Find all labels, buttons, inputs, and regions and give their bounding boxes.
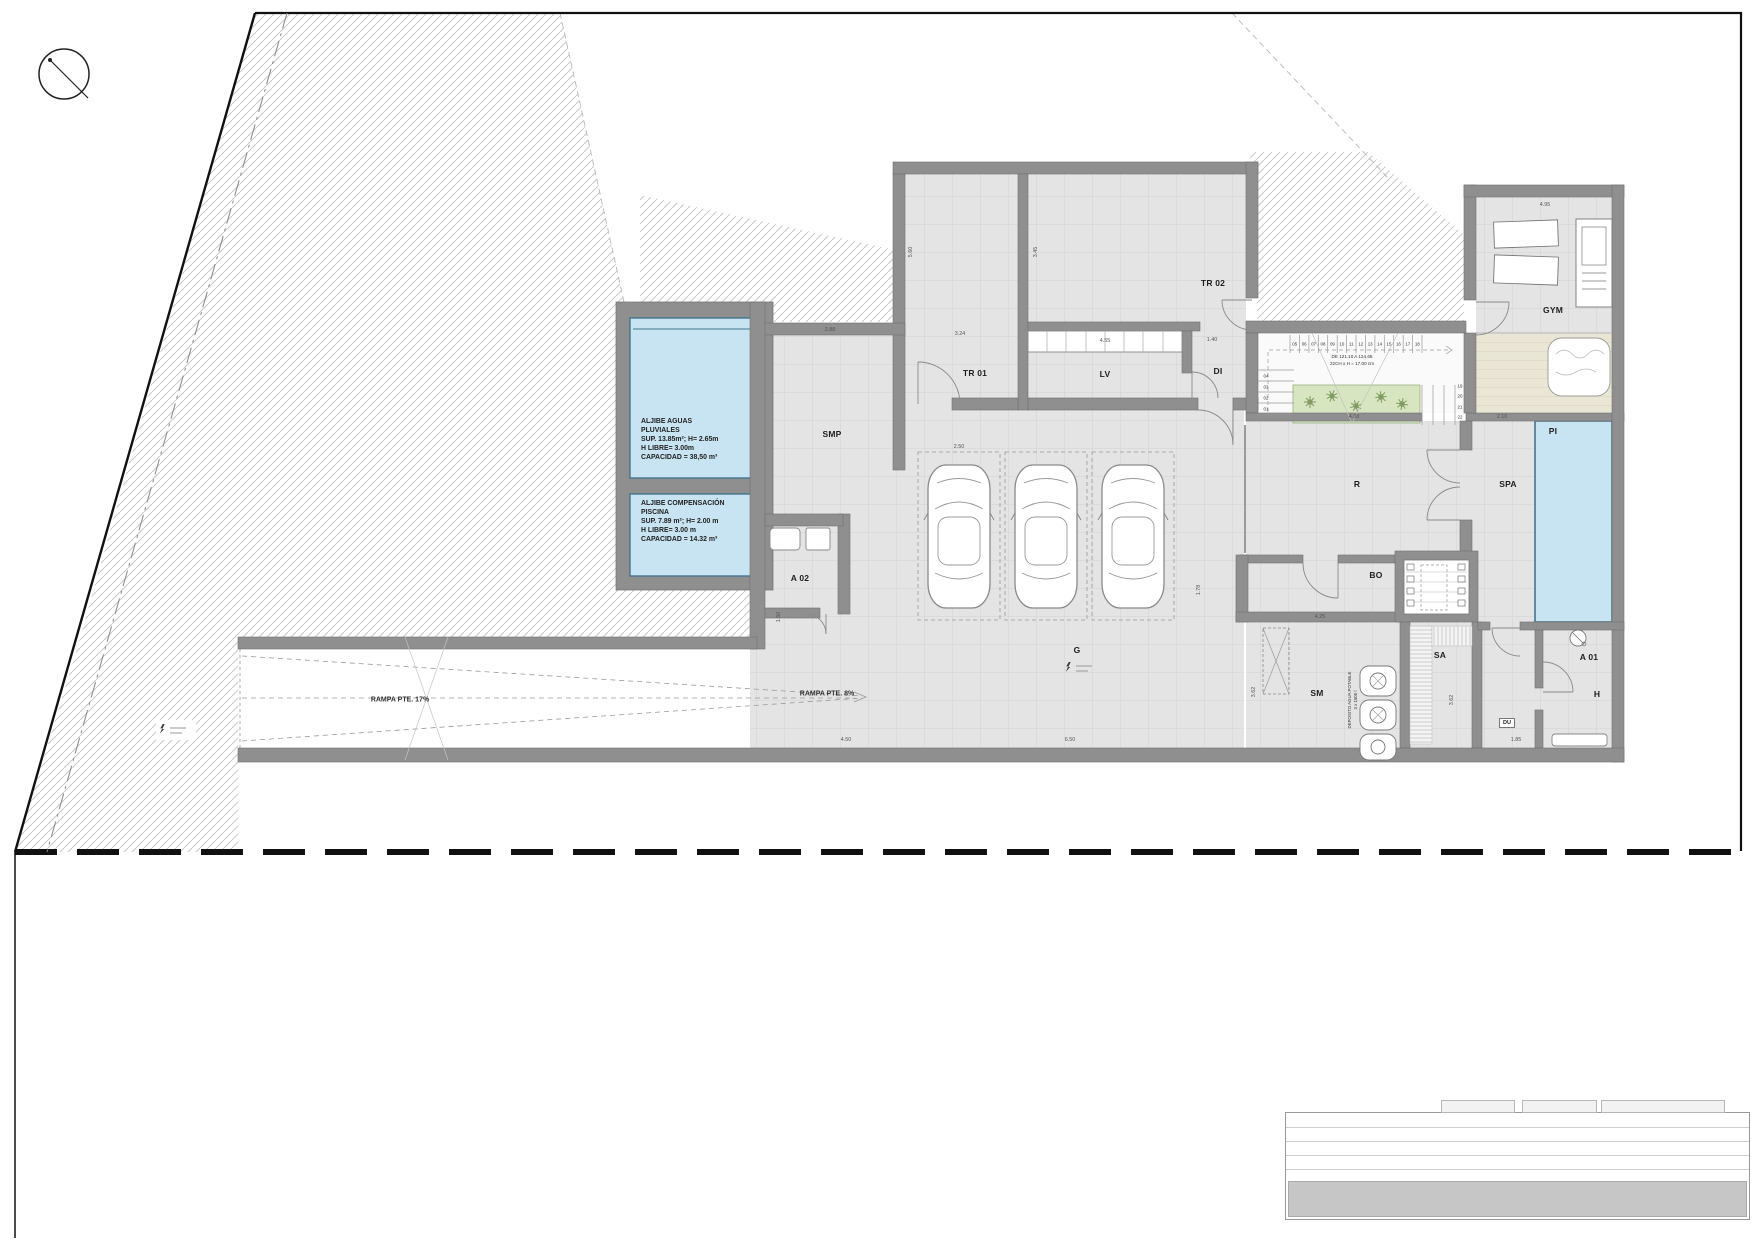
floor-plan-sheet: ALJIBE AGUAS PLUVIALES SUP. 13.85m²; H= … xyxy=(0,0,1755,1241)
car-2 xyxy=(1011,465,1081,608)
sauna-bench-left xyxy=(1410,626,1432,744)
ramp-symbol xyxy=(156,720,196,740)
lv-counter xyxy=(1028,331,1182,352)
title-block-cell xyxy=(1522,1100,1597,1113)
cistern-rainwater xyxy=(630,318,759,478)
sauna-bench-top xyxy=(1432,626,1472,646)
title-block-band xyxy=(1288,1181,1747,1217)
car-3 xyxy=(1098,465,1168,608)
plan-drawing xyxy=(0,0,1755,1241)
a02-fixtures xyxy=(770,528,830,550)
car-1 xyxy=(924,465,994,608)
title-block xyxy=(1285,1112,1750,1220)
north-indicator-icon xyxy=(39,49,89,99)
deck-lounger xyxy=(1548,338,1610,396)
cars xyxy=(924,465,1168,608)
title-block-cell xyxy=(1601,1100,1725,1113)
pool-pi xyxy=(1535,421,1612,622)
elevator xyxy=(1404,560,1469,614)
title-block-cell xyxy=(1441,1100,1515,1113)
cistern-pool-compensation xyxy=(630,494,759,576)
